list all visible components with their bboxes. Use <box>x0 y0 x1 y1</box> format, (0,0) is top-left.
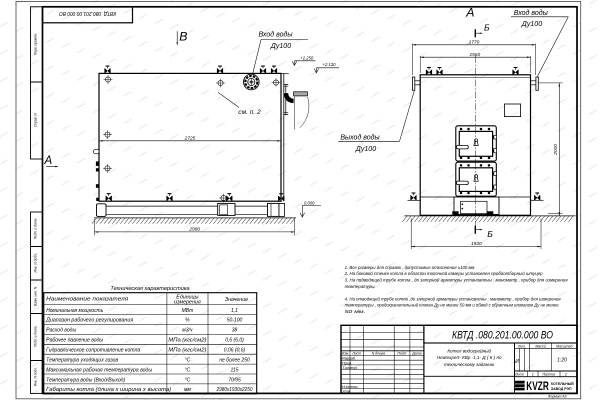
svg-text:2980: 2980 <box>188 227 200 233</box>
svg-text:1560: 1560 <box>469 52 480 58</box>
svg-text:Справ. N: Справ. N <box>34 113 38 127</box>
svg-text:измерения: измерения <box>174 300 201 306</box>
svg-text:Утв.: Утв. <box>342 389 351 394</box>
svg-text:И: И <box>515 359 519 365</box>
svg-text:°С: °С <box>185 377 191 383</box>
svg-text:Heatexpert- КВр -1,1- Д ( К ): Heatexpert- КВр -1,1- Д ( К ) по <box>437 355 502 360</box>
svg-text:3. На подводящей трубе котла ,: 3. На подводящей трубе котла , до запорн… <box>345 277 568 284</box>
svg-text:Подп. и дата: Подп. и дата <box>34 218 38 239</box>
svg-text:Температура уходящих газов: Температура уходящих газов <box>46 357 118 363</box>
svg-text:Габариты котла (длина х ширина: Габариты котла (длина х ширина х высота) <box>46 387 171 393</box>
svg-text:0,06 (0,6): 0,06 (0,6) <box>224 348 246 354</box>
svg-text:115: 115 <box>231 367 239 373</box>
svg-text:50 мм.: 50 мм. <box>345 309 366 315</box>
svg-text:МПа (кгс/см2): МПа (кгс/см2) <box>168 338 206 344</box>
svg-text:Рабочее давление воды: Рабочее давление воды <box>46 338 103 344</box>
svg-text:мм: мм <box>184 387 191 393</box>
svg-text:N докум.: N докум. <box>372 352 386 356</box>
svg-text:Вход воды: Вход воды <box>259 30 294 38</box>
svg-text:А: А <box>43 155 52 167</box>
svg-text:Листов: Листов <box>541 373 555 377</box>
svg-text:Инв. N дубл.: Инв. N дубл. <box>34 253 38 272</box>
svg-text:1930: 1930 <box>471 241 482 247</box>
svg-text:Лит.: Лит. <box>517 344 526 348</box>
svg-text:КВТД .080.201.00.000 ВО: КВТД .080.201.00.000 ВО <box>58 10 116 16</box>
svg-text:Формат А3: Формат А3 <box>548 395 567 399</box>
svg-text:Вход воды: Вход воды <box>514 9 549 17</box>
svg-text:КОТЕЛЬНЫЙ: КОТЕЛЬНЫЙ <box>551 382 574 386</box>
svg-text:техническому заданию: техническому заданию <box>444 362 495 367</box>
svg-text:Номинальная мощность: Номинальная мощность <box>46 308 103 314</box>
svg-text:ЗАВОД РЭП: ЗАВОД РЭП <box>551 387 572 391</box>
svg-text:Подп.: Подп. <box>397 352 406 356</box>
svg-text:Т.контр.: Т.контр. <box>342 365 358 370</box>
svg-text:МПа (кгс/см2): МПа (кгс/см2) <box>168 348 206 354</box>
svg-text:+2.130: +2.130 <box>323 62 337 67</box>
svg-text:2980х1930х2250: 2980х1930х2250 <box>216 387 253 393</box>
svg-text:38: 38 <box>232 328 238 334</box>
svg-text:2: 2 <box>564 373 567 377</box>
svg-text:Взам. инв. N: Взам. инв. N <box>33 286 37 306</box>
svg-text:Инв. N подл.: Инв. N подл. <box>34 367 38 386</box>
svg-text:2725: 2725 <box>184 135 196 141</box>
svg-text:м3/ч: м3/ч <box>182 328 193 334</box>
svg-text:температуры.: температуры. <box>345 285 376 290</box>
svg-text:1:20: 1:20 <box>557 358 567 364</box>
svg-text:Диапазон рабочего регулировани: Диапазон рабочего регулирования <box>45 318 133 324</box>
svg-text:Ду100: Ду100 <box>355 146 376 153</box>
svg-text:4. На отводящей трубе котла ,д: 4. На отводящей трубе котла ,до запорной… <box>345 295 561 302</box>
svg-text:Дата: Дата <box>411 352 421 356</box>
svg-text:1,1: 1,1 <box>231 308 238 314</box>
svg-text:2000: 2000 <box>553 144 559 156</box>
svg-text:Техническая характеристика: Техническая характеристика <box>110 286 189 292</box>
svg-text:А: А <box>465 6 474 20</box>
svg-text:Максимальная рабочая температу: Максимальная рабочая температура воды <box>46 367 152 373</box>
svg-text:КВТД .080.201.00.000 ВО: КВТД .080.201.00.000 ВО <box>452 330 553 342</box>
svg-text:KVZR: KVZR <box>526 379 549 393</box>
svg-text:Гидравлическое сопротивление к: Гидравлическое сопротивление котла <box>46 348 140 354</box>
svg-text:2. На боковой стенке котла в о: 2. На боковой стенке котла в области топ… <box>344 270 543 277</box>
svg-text:50-100: 50-100 <box>227 318 243 324</box>
svg-text:°С: °С <box>185 367 191 373</box>
svg-text:Выход воды: Выход воды <box>340 134 380 142</box>
svg-text:Котел водогрейный: Котел водогрейный <box>447 347 491 353</box>
svg-text:1770: 1770 <box>469 39 480 45</box>
svg-text:0,6 (6,0): 0,6 (6,0) <box>225 338 244 344</box>
svg-text:0.000: 0.000 <box>304 201 315 206</box>
svg-text:Расход воды: Расход воды <box>46 328 76 334</box>
svg-text:Ду100: Ду100 <box>521 21 542 28</box>
svg-text:°С: °С <box>185 357 191 363</box>
svg-text:МВт: МВт <box>182 308 194 314</box>
svg-text:%: % <box>185 318 190 324</box>
svg-text:70/95: 70/95 <box>228 377 241 383</box>
svg-text:Подп. и дата: Подп. и дата <box>34 326 38 347</box>
svg-text:1: 1 <box>532 373 534 377</box>
svg-text:Наименование показателя: Наименование показателя <box>46 297 128 303</box>
svg-text:Б: Б <box>487 229 493 239</box>
svg-text:Масса: Масса <box>535 344 545 348</box>
svg-text:1. Все размеры для справок , д: 1. Все размеры для справок , допустимые … <box>345 265 476 271</box>
svg-text:Перв. примен.: Перв. примен. <box>34 33 38 55</box>
svg-text:температуры , предохранительны: температуры , предохранительный клапан Д… <box>345 302 559 309</box>
svg-text:Б: Б <box>484 23 490 33</box>
svg-text:Значение: Значение <box>225 297 248 303</box>
svg-text:Ду100: Ду100 <box>270 43 291 50</box>
svg-text:см. п. 2: см. п. 2 <box>238 109 261 116</box>
svg-text:В: В <box>179 30 187 44</box>
svg-text:Температура воды (Вход/Выход): Температура воды (Вход/Выход) <box>46 377 125 383</box>
svg-text:Лист: Лист <box>514 373 524 377</box>
svg-text:+2.250: +2.250 <box>300 56 314 61</box>
svg-text:не более 250: не более 250 <box>219 357 250 363</box>
svg-text:Масштаб: Масштаб <box>556 344 573 348</box>
